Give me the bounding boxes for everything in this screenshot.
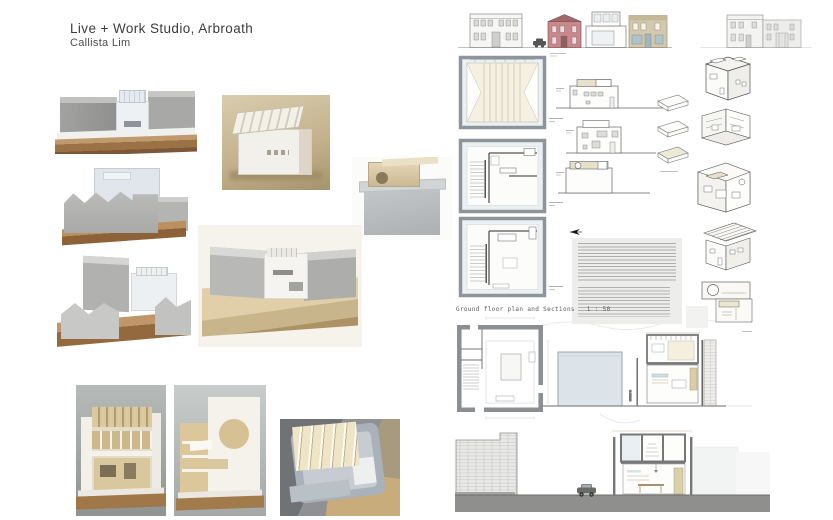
elevation-drawing-3 (556, 162, 650, 194)
first-floor-plan-drawing (461, 219, 564, 296)
ground-floor-caption: Ground floor plan and Sections 1 : 50 (456, 306, 611, 313)
exploded-floor-plates-drawing (658, 95, 688, 172)
drawing-sheet (0, 0, 833, 520)
axon-cutaway-drawing (698, 163, 750, 212)
north-arrow-icon (570, 229, 582, 235)
axon-roof-structure-drawing (704, 223, 756, 270)
street-elevation-drawing (458, 12, 812, 57)
building-section (613, 435, 692, 496)
stone-building-section (456, 433, 517, 496)
section-drawing (540, 333, 752, 406)
axon-section-elevation-drawing (702, 282, 752, 332)
second-floor-plan-drawing (461, 141, 564, 212)
ground-band (455, 495, 770, 512)
axon-closed-box-drawing (706, 57, 750, 100)
person-figure (629, 390, 632, 402)
ground-floor-plan-drawing (457, 317, 550, 420)
car-icon (533, 39, 546, 48)
roof-plan-drawing (461, 58, 564, 128)
portfolio-page: Live + Work Studio, Arbroath Callista Li… (0, 0, 833, 520)
elevation-drawing-1 (556, 80, 664, 109)
paragraph-lines (578, 243, 676, 281)
elevation-drawing-2 (566, 121, 656, 154)
axon-sectional-drawing (702, 109, 750, 145)
site-section-drawing (455, 431, 770, 512)
proposal-elevation (586, 12, 626, 48)
